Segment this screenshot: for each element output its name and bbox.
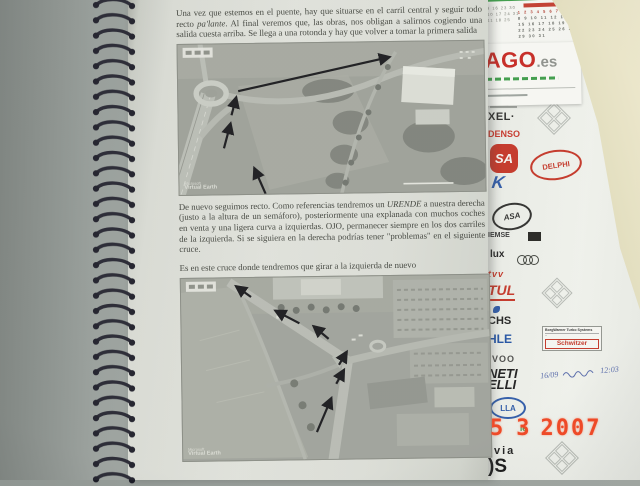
borgwarner-box: BorgWarner Turbo Systems ~ Schwitzer — [542, 326, 602, 351]
logo-lux: lux — [490, 249, 504, 260]
note-time: 12:03 — [600, 365, 619, 376]
logo-blue-k: K — [491, 173, 506, 193]
logo-line-elli: ELLI — [488, 379, 518, 390]
virtual-earth-watermark: Microsoft Virtual Earth — [188, 447, 221, 457]
paragraph-3: Es en este cruce donde tendremos que gir… — [180, 258, 486, 273]
logo-denso: DENSO — [488, 129, 520, 139]
logo-tvv: tvv — [488, 269, 504, 279]
logo-sa-badge: SA — [490, 144, 518, 173]
notebook-page: Una vez que estemos en el puente, hay qu… — [128, 0, 488, 480]
card-divider — [481, 87, 575, 90]
logo-black-box-icon — [528, 232, 541, 241]
brand-card: AGO.es — [476, 42, 581, 106]
logo-iemse: IEMSE — [488, 232, 510, 239]
green-tagline-bar — [486, 76, 558, 81]
handwritten-note: 16/09 12:03 — [540, 365, 619, 381]
aerial-map-roundabout: Microsoft Virtual Earth — [176, 39, 486, 195]
fine-print-line — [490, 106, 517, 108]
logo-voo: VOO — [492, 354, 515, 364]
address-line — [483, 94, 527, 97]
virtual-earth-watermark: Microsoft Virtual Earth — [184, 180, 217, 190]
logo-exel: XEL· — [488, 111, 515, 123]
pen-squiggle-icon — [562, 367, 597, 378]
logo-schwitzer: Schwitzer — [545, 339, 599, 349]
map-overlay-label — [183, 47, 213, 57]
diamond-watermark-icon — [537, 101, 571, 135]
date-year: 2007 — [541, 416, 602, 441]
paragraph-2: De nuevo seguimos recto. Como referencia… — [179, 197, 486, 254]
brand-wordmark: AGO.es — [484, 46, 557, 74]
photo-of-spiral-route-book: XEL· DENSO SA DELPHI K ASA IEMSE lux tvv… — [0, 0, 640, 480]
diamond-watermark-icon — [541, 277, 572, 308]
date-month: 3 — [516, 416, 531, 441]
logo-magneti-marelli: NETI ELLI — [488, 368, 518, 390]
brand-suffix: .es — [536, 53, 557, 70]
logo-motul: TUL — [488, 282, 515, 301]
camera-date-stamp: 5 3 2007 — [490, 416, 601, 441]
aerial-map-crossroads: Microsoft Virtual Earth — [180, 274, 493, 462]
paragraph-1: Una vez que estemos en el puente, hay qu… — [176, 4, 482, 40]
three-rings-icon — [517, 252, 539, 270]
logo-asa-oval: ASA — [490, 200, 534, 234]
aerial-photo-1 — [178, 40, 486, 194]
logo-sachs: CHS — [488, 315, 511, 327]
logo-s-partial: )S — [488, 456, 507, 478]
logo-mahle: HLE — [488, 332, 512, 346]
note-date: 16/09 — [540, 370, 559, 381]
spiral-binding — [88, 0, 140, 486]
date-day: 5 — [490, 416, 505, 441]
page-content: Una vez que estemos en el puente, hay qu… — [176, 4, 488, 463]
diamond-watermark-icon — [545, 441, 579, 475]
aerial-photo-2 — [181, 275, 492, 461]
brand-text: AGO — [484, 47, 536, 73]
text-run-italic: pa'lante — [197, 18, 225, 28]
small-blue-mark-icon — [493, 306, 500, 313]
map-overlay-label — [186, 282, 216, 292]
text-run-italic: URENDE — [387, 198, 422, 208]
calendar-month-header — [523, 2, 557, 7]
logo-delphi: DELPHI — [528, 147, 584, 184]
